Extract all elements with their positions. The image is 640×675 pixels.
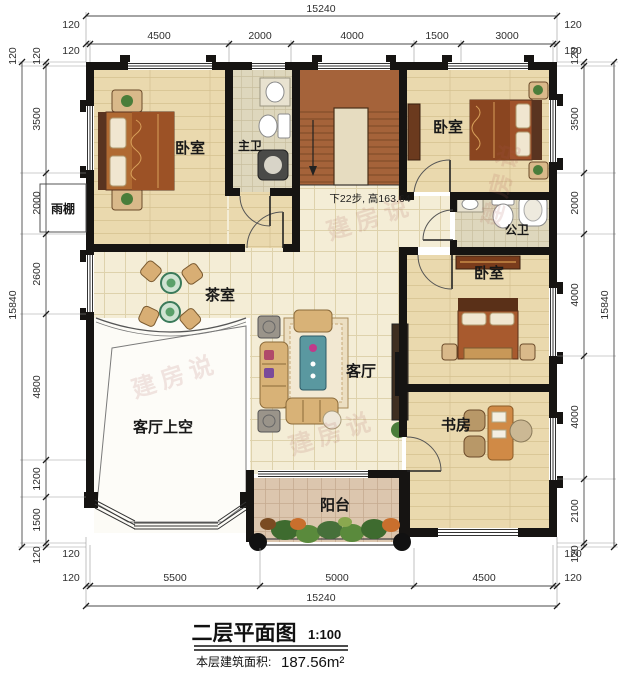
window [549, 418, 557, 480]
nightstand-icon [520, 344, 535, 360]
window [438, 528, 518, 537]
dim-label: 4500 [472, 572, 496, 584]
plant-icon [121, 95, 133, 107]
plant-icon [121, 193, 133, 205]
room-label-living-room: 客厅 [345, 362, 376, 380]
dim-label: 4000 [569, 283, 581, 307]
plant-icon [533, 165, 543, 175]
sofa-icon [260, 342, 288, 408]
room-label-balcony: 阳台 [320, 496, 350, 514]
dim-label: 120 [7, 47, 19, 65]
dim-label: 3500 [31, 107, 43, 131]
dim-label: 120 [62, 572, 80, 584]
room-label-bedroom-tl: 卧室 [175, 139, 205, 157]
room-label-bedroom-mr: 卧室 [474, 264, 504, 282]
plant-icon [533, 85, 543, 95]
desk-papers [492, 412, 506, 422]
title-scale: 1:100 [308, 627, 341, 642]
staircase [296, 66, 402, 185]
dim-label: 120 [31, 546, 43, 564]
desk-papers [492, 430, 506, 438]
room-label-public-bath: 公卫 [505, 223, 529, 237]
dim-label: 4500 [147, 30, 171, 42]
dim-label: 1500 [425, 30, 449, 42]
dim-top-total: 15240 [306, 3, 335, 15]
dim-label: 120 [564, 19, 582, 31]
window [86, 255, 94, 312]
window [86, 106, 94, 170]
dim-label: 120 [62, 548, 80, 560]
bed-icon [458, 298, 518, 359]
window [128, 62, 212, 70]
area-label: 本层建筑面积: [196, 654, 271, 669]
master-bath-fixtures [258, 78, 290, 180]
room-label-canopy: 雨棚 [51, 201, 75, 216]
balcony-slider [258, 470, 368, 478]
tea-table-icon [161, 273, 181, 293]
column-icon [249, 533, 267, 551]
dim-label: 4800 [31, 375, 43, 399]
dim-label: 120 [564, 548, 582, 560]
dim-label: 120 [564, 572, 582, 584]
dim-bottom-total: 15240 [306, 592, 335, 604]
dim-label: 5000 [325, 572, 349, 584]
sink-icon [462, 199, 478, 210]
window [549, 288, 557, 356]
dim-label: 120 [569, 47, 581, 65]
page-title: 二层平面图 [192, 622, 297, 645]
dim-right-total: 15840 [599, 290, 611, 319]
dim-label: 1200 [31, 467, 43, 491]
dim-label: 2000 [31, 191, 43, 215]
floor-plan-page: 雨棚 卧室 主卫 卧室 公卫 卧室 茶室 客厅 客厅上空 书房 阳台 下22步,… [0, 0, 640, 675]
stair-well [334, 108, 368, 185]
chair-icon [464, 436, 485, 457]
dim-label: 4000 [569, 405, 581, 429]
dim-left-total: 15840 [7, 290, 19, 319]
floor-plan-drawing: 雨棚 卧室 主卫 卧室 公卫 卧室 茶室 客厅 客厅上空 书房 阳台 下22步,… [0, 0, 640, 675]
dim-label: 3000 [495, 30, 519, 42]
room-label-study: 书房 [441, 416, 471, 434]
dim-label: 1500 [31, 508, 43, 532]
nightstand-icon [442, 344, 457, 360]
dim-label: 2600 [31, 262, 43, 286]
canopy: 雨棚 [40, 184, 86, 232]
tea-table-icon [160, 302, 180, 322]
room-label-master-bath: 主卫 [238, 138, 262, 153]
room-label-bedroom-tr: 卧室 [433, 118, 463, 136]
window [252, 62, 285, 70]
dim-label: 5500 [163, 572, 187, 584]
dim-label: 2000 [569, 191, 581, 215]
bed-icon [98, 112, 174, 190]
window [318, 62, 390, 70]
dresser-icon [408, 104, 420, 160]
side-table-icon [258, 316, 280, 338]
dim-label: 4000 [340, 30, 364, 42]
room-label-living-void: 客厅上空 [132, 418, 193, 436]
dim-label: 3500 [569, 107, 581, 131]
window [549, 100, 557, 162]
window [448, 62, 528, 70]
area-value: 187.56m² [281, 654, 344, 671]
side-table-icon [258, 410, 280, 432]
corridor-floor [229, 192, 296, 248]
dim-label: 2100 [569, 499, 581, 523]
loveseat-icon [294, 310, 332, 332]
dim-label: 2000 [248, 30, 272, 42]
title-underline [194, 646, 348, 650]
sink-icon [266, 82, 284, 102]
dim-label: 120 [62, 19, 80, 31]
round-chair-icon [510, 420, 532, 442]
shower-icon [258, 150, 288, 180]
coffee-table-icon [300, 336, 326, 390]
dim-label: 120 [31, 47, 43, 65]
dim-label: 120 [62, 45, 80, 57]
column-icon [393, 533, 411, 551]
title-block: 二层平面图 1:100 本层建筑面积: 187.56m² [192, 622, 349, 671]
room-label-tea-room: 茶室 [205, 286, 235, 304]
